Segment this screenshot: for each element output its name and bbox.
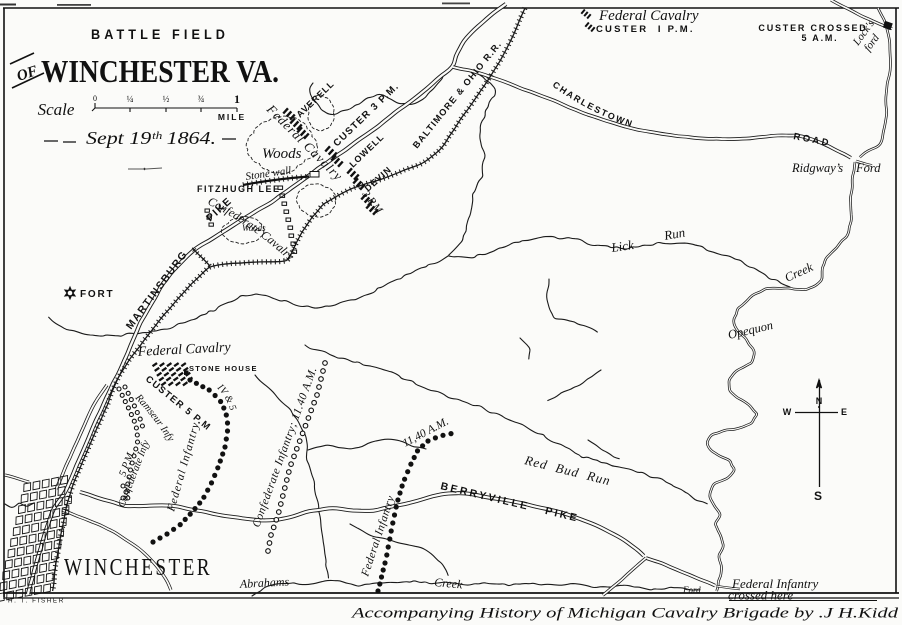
svg-text:Accompanying History of Mi: Accompanying History of Michigan Cavalry… [351,606,899,622]
svg-text:STONE HOUSE: STONE HOUSE [189,364,258,373]
svg-text:BATTLE FIELD: BATTLE FIELD [91,26,229,42]
svg-text:WINCHESTER: WINCHESTER [64,555,212,581]
svg-text:WINCHESTER VA.: WINCHESTER VA. [41,53,279,89]
svg-text:Federal Cavalry: Federal Cavalry [598,8,699,24]
svg-text:CUSTER CROSSED: CUSTER CROSSED [758,23,867,33]
svg-text:FORT: FORT [80,289,114,300]
svg-text:H. T. FISHER: H. T. FISHER [8,598,65,605]
svg-text:0: 0 [93,94,97,103]
svg-text:1: 1 [234,92,240,106]
svg-text:Abrahams: Abrahams [238,574,289,591]
svg-text:Scale: Scale [38,100,75,119]
svg-text:S: S [814,489,822,503]
svg-text:Ford: Ford [855,161,881,175]
svg-text:N: N [816,396,823,406]
svg-text:Sept 19ᵗʰ 1864.: Sept 19ᵗʰ 1864. [86,128,216,148]
svg-text:FITZHUGH LEE: FITZHUGH LEE [197,184,281,194]
svg-text:CUSTER I P.M.: CUSTER I P.M. [596,24,695,35]
svg-text:½: ½ [163,94,170,104]
svg-text:5 A.M.: 5 A.M. [802,33,839,43]
svg-text:MILE: MILE [218,112,246,122]
svg-text:W: W [783,407,792,417]
svg-text:¾: ¾ [198,94,205,104]
svg-text:Ford: Ford [682,585,701,595]
svg-text:Ridgway’s: Ridgway’s [791,161,843,175]
svg-text:Creek: Creek [434,575,464,591]
svg-text:¼: ¼ [127,94,134,104]
svg-text:Woods: Woods [262,146,302,162]
svg-text:E: E [841,407,847,417]
